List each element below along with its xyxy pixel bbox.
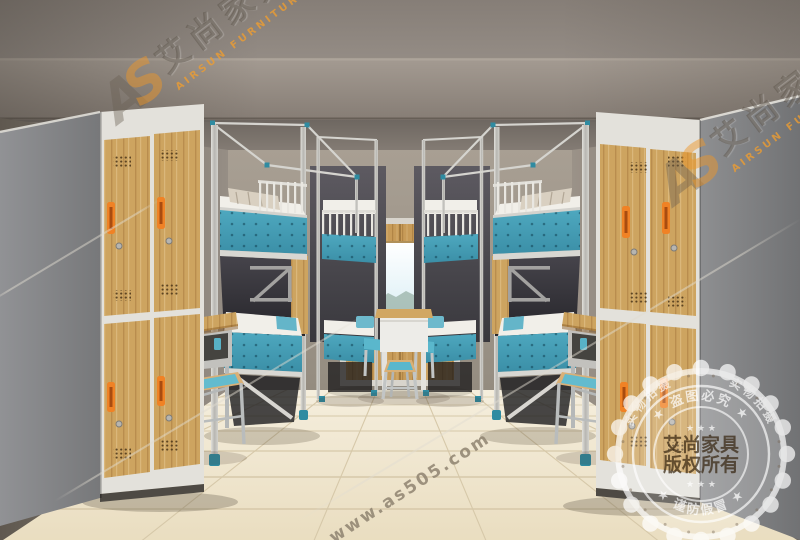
bed-post-front — [582, 125, 589, 459]
upper-guardrail — [493, 182, 542, 213]
dorm-room-render: AS 艾尚家具 AIRSUN FURNITURE AS 艾尚家具 AIRSUN … — [0, 0, 800, 540]
bed-post — [317, 137, 320, 399]
pillow-blue — [503, 316, 524, 331]
pillow-blue — [276, 316, 297, 331]
upper-guardrail — [322, 212, 376, 236]
wardrobe-side-panel — [0, 112, 100, 526]
table-top — [375, 309, 433, 318]
bed-post — [375, 140, 378, 392]
foot-cap — [299, 410, 308, 420]
foot-cap — [492, 410, 501, 420]
table-leg — [421, 352, 426, 390]
room-scene — [0, 0, 800, 540]
upper-guardrail — [258, 182, 307, 213]
bed-post-front — [211, 125, 218, 459]
wardrobe-right — [563, 96, 800, 540]
wardrobe-left — [0, 104, 238, 526]
table-body — [380, 318, 428, 352]
locker-door — [650, 149, 696, 316]
pillow-blue — [356, 316, 374, 328]
upper-guardrail — [424, 212, 478, 236]
wardrobe-side-panel — [700, 96, 800, 540]
bed-post — [480, 137, 483, 399]
